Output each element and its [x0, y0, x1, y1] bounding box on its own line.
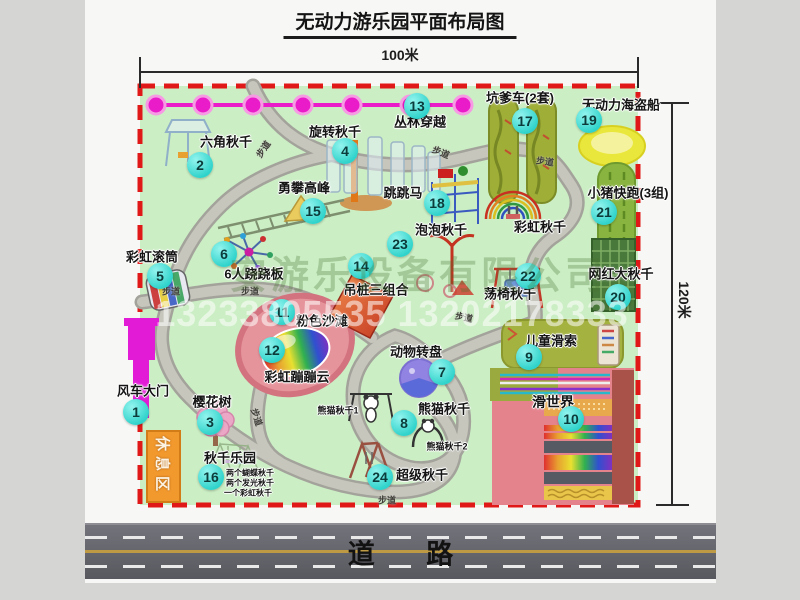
annotation-6: 一个彩虹秋千 [224, 488, 272, 499]
item-label-3: 樱花树 [192, 392, 231, 411]
item-badge-21: 21 [591, 199, 617, 225]
item-badge-23: 23 [387, 231, 413, 257]
item-badge-9: 9 [516, 344, 542, 370]
annotation-3: 熊猫秋千2 [426, 440, 467, 453]
item-label-5: 彩虹滚筒 [126, 247, 178, 266]
item-badge-17: 17 [512, 108, 538, 134]
item-label-17: 坑爹车(2套) [486, 88, 554, 107]
rest-area-label: 休息区 [153, 436, 174, 496]
path-label-8: 步道 [378, 494, 396, 507]
item-label-1: 风车大门 [117, 381, 169, 400]
item-label-4: 旋转秋千 [309, 122, 361, 141]
item-badge-8: 8 [391, 410, 417, 436]
slide-world-icon [490, 368, 634, 505]
item-label-2: 六角秋千 [200, 132, 252, 151]
item-label-6: 6人跷跷板 [224, 264, 283, 283]
item-label-24: 超级秋千 [396, 465, 448, 484]
item-label-8: 熊猫秋千 [418, 399, 470, 418]
item-label-11: 粉色沙滩 [296, 311, 348, 330]
item-badge-10: 10 [558, 406, 584, 432]
item-label-23: 泡泡秋千 [415, 220, 467, 239]
road-label: 道 路 [326, 533, 476, 572]
item-badge-13: 13 [404, 93, 430, 119]
item-badge-16: 16 [198, 464, 224, 490]
item-badge-1: 1 [123, 399, 149, 425]
item-label-15: 勇攀高峰 [278, 178, 330, 197]
path-label-3: 步道 [535, 153, 555, 168]
item-badge-15: 15 [300, 198, 326, 224]
path-label-5: 步道 [241, 285, 259, 298]
item-badge-14: 14 [348, 253, 374, 279]
item-badge-5: 5 [147, 263, 173, 289]
item-badge-6: 6 [211, 241, 237, 267]
road: 道 路 [85, 523, 716, 579]
item-badge-7: 7 [429, 359, 455, 385]
item-badge-22: 22 [515, 263, 541, 289]
item-badge-4: 4 [332, 138, 358, 164]
item-badge-20: 20 [605, 284, 631, 310]
annotation-1: 彩虹秋千 [514, 217, 566, 236]
height-dimension-label: 120米 [674, 281, 694, 318]
item-label-18: 跳跳马 [383, 183, 422, 202]
item-badge-12: 12 [259, 337, 285, 363]
page-title: 无动力游乐园平面布局图 [283, 7, 516, 39]
item-label-7: 动物转盘 [390, 342, 442, 361]
item-badge-19: 19 [576, 107, 602, 133]
item-label-14: 吊桩三组合 [343, 280, 408, 299]
item-badge-24: 24 [367, 464, 393, 490]
page: { "title": "无动力游乐园平面布局图", "dimensions": … [0, 0, 800, 600]
width-dimension-label: 100米 [381, 45, 418, 65]
annotation-2: 熊猫秋千1 [317, 404, 358, 417]
item-label-12: 彩虹蹦蹦云 [264, 367, 329, 386]
item-badge-11: 11 [269, 299, 295, 325]
item-badge-3: 3 [197, 409, 223, 435]
item-badge-2: 2 [187, 152, 213, 178]
item-badge-18: 18 [424, 190, 450, 216]
item-label-20: 网红大秋千 [588, 264, 653, 283]
